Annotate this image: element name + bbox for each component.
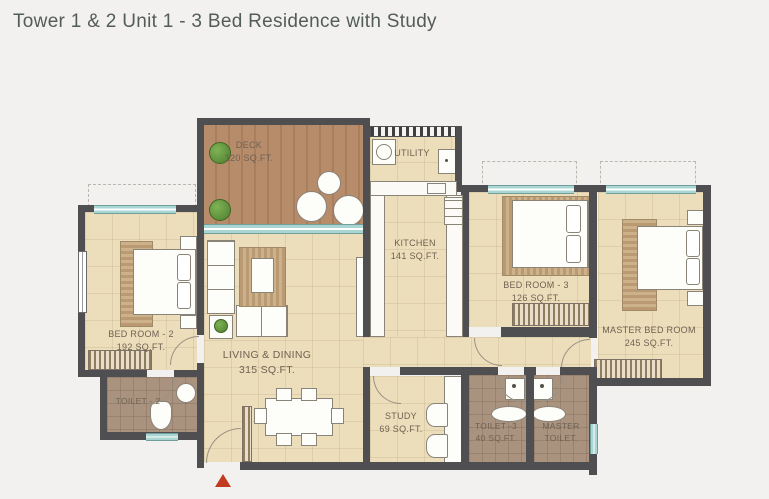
wall — [363, 367, 370, 468]
wall — [78, 370, 147, 377]
wall — [197, 232, 204, 335]
wall — [197, 118, 370, 125]
kitchen-sink — [427, 183, 446, 194]
pillow — [177, 254, 191, 281]
dining-chair — [301, 433, 317, 446]
wall — [400, 367, 461, 375]
toilet2-label: TOILET - 2 — [106, 396, 170, 408]
master-bedroom-window — [606, 185, 696, 194]
wall — [461, 367, 498, 375]
master-toilet-label: MASTER TOILET. — [537, 421, 585, 445]
pillow — [686, 230, 700, 257]
wall — [589, 367, 597, 475]
bedroom2-label: BED ROOM - 2 192 SQ.FT. — [88, 328, 194, 353]
dining-chair — [276, 433, 292, 446]
plant-icon — [209, 199, 231, 221]
nightstand — [180, 315, 197, 329]
master-toilet-window — [590, 424, 598, 454]
page-title: Tower 1 & 2 Unit 1 - 3 Bed Residence wit… — [13, 11, 437, 33]
bedroom3-wardrobe — [512, 303, 590, 326]
nightstand — [180, 236, 197, 250]
entry-arrow-icon — [215, 474, 231, 487]
bedroom3-label: BED ROOM - 3 126 SQ.FT. — [482, 279, 590, 304]
wc-flush — [512, 384, 516, 388]
wall — [363, 118, 370, 337]
kitchen-counter — [370, 195, 385, 337]
nightstand — [687, 291, 704, 306]
fridge — [444, 197, 463, 225]
pillow — [566, 235, 581, 263]
study-chair — [426, 434, 448, 458]
wall — [197, 118, 204, 232]
utility-louver — [370, 126, 457, 137]
bedroom3-window — [488, 185, 574, 194]
deck-chair — [333, 195, 364, 226]
wall — [240, 462, 597, 470]
dining-chair — [331, 408, 344, 424]
toilet2-window — [146, 433, 178, 441]
floor-plan-page: Tower 1 & 2 Unit 1 - 3 Bed Residence wit… — [0, 0, 769, 499]
pillow — [686, 258, 700, 285]
kitchen-label: KITCHEN 141 SQ.FT. — [385, 237, 445, 262]
master-bedroom-label: MASTER BED ROOM 245 SQ.FT. — [596, 324, 702, 349]
pillow — [566, 205, 581, 233]
projection-above-bedroom2 — [88, 184, 196, 207]
sink-drain — [445, 159, 448, 162]
deck-table — [317, 171, 341, 195]
deck-sliding-window — [204, 224, 363, 234]
dining-chair — [254, 408, 267, 424]
utility-label: UTILITY — [382, 147, 442, 160]
dining-table — [265, 398, 333, 436]
wall — [589, 185, 597, 338]
nightstand — [687, 210, 704, 225]
deck-chair — [296, 191, 327, 222]
master-wardrobe — [594, 359, 662, 379]
wall — [526, 367, 534, 468]
wall — [703, 185, 711, 385]
toilet3-washbasin — [491, 406, 527, 422]
toilet3-label: TOILET -3 40 SQ.FT. — [467, 421, 525, 445]
master-toilet-washbasin — [532, 406, 566, 422]
bedroom2-side-window — [78, 251, 87, 313]
wall — [461, 367, 469, 468]
shoe-cabinet — [242, 406, 252, 462]
wall — [501, 327, 591, 337]
deck-label: DECK 120 SQ.FT. — [208, 139, 290, 164]
projection-above-bedroom3 — [482, 161, 577, 188]
dining-chair — [301, 388, 317, 401]
toilet2-washbasin — [176, 383, 196, 403]
wall — [174, 370, 204, 377]
study-label: STUDY 69 SQ.FT. — [372, 410, 430, 435]
sofa — [236, 305, 288, 337]
living-dining-label: LIVING & DINING 315 SQ.FT. — [207, 348, 327, 377]
projection-above-master — [600, 161, 696, 188]
wc-flush — [540, 384, 544, 388]
plant-icon — [214, 319, 228, 333]
wall — [589, 378, 711, 386]
coffee-table — [251, 258, 274, 293]
sofa — [207, 240, 235, 314]
bedroom2-window — [94, 205, 176, 214]
wall — [197, 363, 204, 468]
dining-chair — [276, 388, 292, 401]
pillow — [177, 282, 191, 309]
